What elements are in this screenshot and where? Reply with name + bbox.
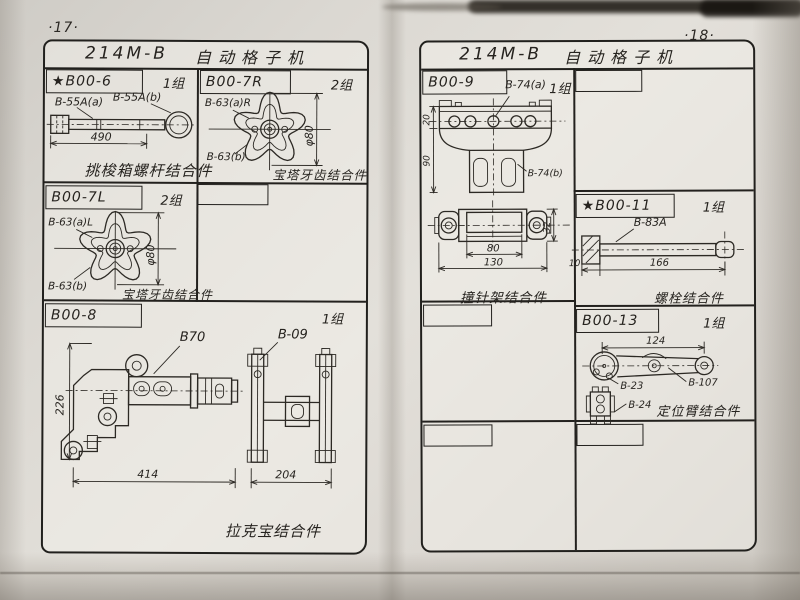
crank-bracket-drawing: 226 414 204 (45, 333, 358, 520)
part-label: B-55A(b) (113, 91, 161, 104)
page-title-row: 214M-B 自动格子机 (45, 41, 367, 70)
part-label: B-63(a)L (48, 216, 93, 228)
cell-caption: 宝塔牙齿结合件 (272, 164, 367, 183)
scan-smudge (382, 3, 502, 11)
screw-rod-drawing: B-55A(a) B-55A(b) 490 (47, 91, 197, 162)
cell-caption: 撞针架结合件 (460, 286, 547, 306)
part-label: B-74(a) (505, 78, 546, 91)
dim-label: 414 (137, 468, 158, 481)
page-number-left: ·17· (48, 20, 79, 36)
part-label: B-63(b) (48, 280, 87, 292)
empty-part-code-box (575, 70, 642, 92)
scan-smudge (700, 0, 800, 17)
dim-label: 490 (91, 130, 112, 143)
empty-part-code-box (423, 304, 492, 326)
dim-label: 10 (569, 259, 581, 269)
part-label: B-63(b) (207, 151, 246, 163)
dim-label: 130 (484, 257, 503, 268)
part-label: B-23 (620, 381, 643, 392)
catalog-page-18: 214M-B 自动格子机 B00-9 B-74(a) 1组 (419, 39, 757, 552)
part-label: B-63(a)R (205, 97, 251, 109)
dim-label: 226 (53, 394, 66, 415)
machine-name: 自动格子机 (564, 44, 679, 68)
dim-label: 204 (275, 468, 296, 481)
cell-caption: 宝塔牙齿结合件 (122, 286, 213, 303)
machine-code: 214M-B (85, 43, 168, 63)
page-title-row: 214M-B 自动格子机 (421, 41, 753, 70)
cell-caption: 定位臂结合件 (656, 400, 740, 419)
scan-shadow (752, 0, 800, 600)
machine-code: 214M-B (459, 44, 542, 64)
dim-label: 124 (646, 336, 665, 347)
cell-caption: 拉克宝结合件 (225, 520, 321, 541)
dim-label: φ80 (303, 125, 316, 146)
dim-label: 90 (423, 155, 433, 167)
dim-label: 166 (650, 258, 669, 269)
part-label: B-74(b) (528, 168, 563, 179)
dim-label: φ80 (144, 244, 157, 265)
part-code-box: B00-9 (422, 70, 507, 94)
catalog-page-17: 214M-B 自动格子机 ★B00-6 1组 B-55A(a) B-55A(b) (41, 39, 369, 554)
part-code-box: B00-13 (576, 309, 659, 333)
group-count: 1组 (703, 313, 724, 332)
dim-label: 20 (422, 114, 432, 126)
dim-label: 80 (487, 243, 500, 254)
cell-caption: 挑梭箱螺杆结合件 (85, 159, 213, 181)
part-code-box: B00-8 (45, 303, 142, 327)
part-label: B-107 (688, 378, 718, 389)
scan-shadow (0, 552, 800, 600)
part-label: B-83A (634, 216, 667, 229)
part-label: B-24 (628, 400, 651, 411)
machine-name: 自动格子机 (195, 44, 310, 69)
group-count: 1组 (322, 309, 343, 328)
page-fold-crease (378, 0, 406, 600)
scan-smudge (468, 0, 800, 13)
empty-part-code-box (576, 424, 643, 446)
grid-line (574, 189, 754, 192)
part-label: B-55A(a) (55, 95, 103, 108)
empty-part-code-box (423, 424, 492, 446)
dim-label: 32 (543, 221, 553, 233)
group-count: 1组 (163, 73, 184, 92)
cell-caption: 螺栓结合件 (654, 288, 724, 307)
scan-shadow (0, 0, 26, 600)
paper-edge (0, 572, 800, 574)
striker-bracket-top-view: 20 90 B-74(b) (425, 94, 573, 213)
grid-line (422, 420, 574, 423)
scanned-parts-catalog: ·17· ·18· 214M-B 自动格子机 ★B00-6 1组 B-55A(a… (0, 0, 800, 600)
empty-part-code-box (197, 184, 268, 205)
